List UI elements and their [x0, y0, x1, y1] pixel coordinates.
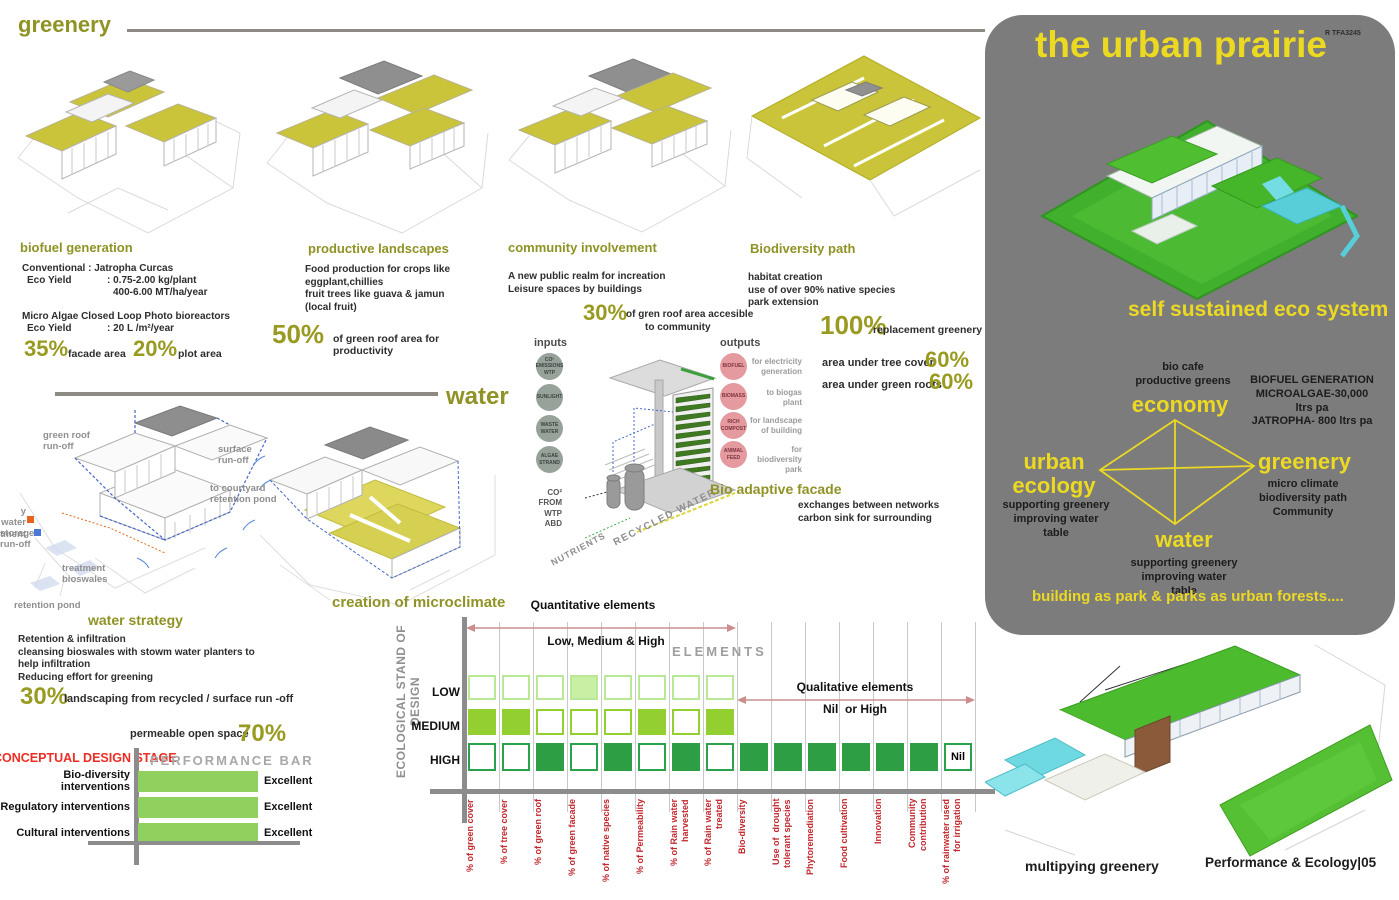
performance-category: Cultural interventions: [0, 827, 130, 839]
input-sunlight: SUNLIGHT: [536, 384, 563, 411]
eco-system-subtitle: self sustained eco system: [1128, 298, 1388, 322]
inputs-title: inputs: [534, 337, 567, 349]
eco-row-label: LOW: [405, 675, 460, 709]
performance-row: Bio-diversity interventionsExcellent: [0, 768, 312, 794]
panel-tagline: building as park & parks as urban forest…: [1032, 588, 1344, 605]
water-stat2-label: permeable open space: [130, 728, 249, 740]
eco-cell-low: [502, 675, 530, 700]
urban-ecology-note: supporting greenery improving water tabl…: [1000, 499, 1112, 540]
input-waste-water: WASTE WATER: [536, 415, 563, 442]
eco-row-labels: LOWMEDIUMHIGH: [405, 675, 460, 777]
eco-cell-high: [638, 743, 666, 771]
performance-bar: [138, 771, 258, 792]
output-animal-feed-desc: for biodiversity park: [750, 445, 802, 475]
eco-cell-low: [536, 675, 564, 700]
biofuel-stat1-value: 35%: [24, 338, 68, 360]
eco-column-label: % of Rain water harvested: [669, 799, 703, 896]
eco-cell-medium: [604, 709, 632, 735]
water-section-title: water: [446, 383, 509, 411]
eco-cell-medium: [672, 709, 700, 735]
eco-cell-medium: [706, 709, 734, 735]
eco-cell-high: [468, 743, 496, 771]
biofuel-micro-algae: Micro Algae Closed Loop Photo bioreactor…: [22, 311, 230, 324]
performance-rating: Excellent: [264, 775, 312, 787]
eco-cell-high: [604, 743, 632, 771]
eco-cell-high: [740, 743, 768, 771]
performance-bar-title: PERFORMANCE BAR: [150, 753, 314, 768]
low-medium-high-label: Low, Medium & High: [516, 634, 696, 648]
biodiversity-stat3-label: area under green roofs: [822, 379, 942, 391]
footer-sheet-title: Performance & Ecology|05: [1205, 855, 1376, 870]
label-green-roof-runoff: green roof run-off: [43, 430, 90, 453]
biofuel-conventional: Conventional : Jatropha Curcas: [22, 263, 173, 276]
label-retention-pond: retention pond: [14, 600, 81, 611]
eco-row-label: HIGH: [405, 743, 460, 777]
eco-column-label: Food cultivation: [839, 799, 873, 896]
eco-cell-high: Nil: [944, 743, 972, 771]
eco-cell-low: [706, 675, 734, 700]
eco-cell-medium: [502, 709, 530, 735]
bio-adaptive-facade-subtitle: exchanges between networks carbon sink f…: [798, 500, 939, 525]
eco-cell-medium: [638, 709, 666, 735]
label-runoff: run-off: [0, 539, 31, 550]
render-urban-prairie-building: [1012, 66, 1372, 301]
output-biomass-desc: to biogas plant: [750, 388, 802, 408]
bio-adaptive-facade-title: Bio adaptive facade: [710, 481, 842, 497]
biodiversity-stat2-value: 60%: [925, 349, 969, 371]
render-multiplying-greenery: [985, 630, 1395, 858]
microclimate-caption: creation of microclimate: [332, 594, 505, 611]
greenery-section-title: greenery: [18, 12, 111, 38]
eco-column-label: Community contribution: [907, 799, 941, 896]
eco-row-medium: [465, 709, 737, 735]
eco-column-label: % of Permeability: [635, 799, 669, 896]
diamond-diagram: [1090, 412, 1270, 532]
nutrients-label: NUTRIENTS: [549, 530, 607, 567]
performance-rating: Excellent: [264, 827, 312, 839]
urban-prairie-title: the urban prairie: [1035, 24, 1327, 66]
eco-cell-low: [604, 675, 632, 700]
inputs-column: CO² EMISSIONS WTP SUNLIGHT WASTE WATER A…: [536, 353, 563, 477]
biofuel-title: biofuel generation: [20, 240, 133, 255]
eco-cell-high: [774, 743, 802, 771]
eco-column-label: Innovation: [873, 799, 907, 896]
biofuel-eco-yield-label-2: Eco Yield: [27, 323, 107, 334]
eco-column-label: % of green roof: [533, 799, 567, 896]
label-surface-runoff: surface run-off: [218, 444, 252, 467]
water-divider: [55, 392, 438, 396]
eco-cell-high: [706, 743, 734, 771]
node-greenery: greenery: [1258, 449, 1351, 475]
eco-cell-high: [842, 743, 870, 771]
biodiversity-stat2-label: area under tree cover: [822, 357, 934, 369]
biofuel-eco-yield-label-1: Eco Yield: [27, 275, 107, 286]
water-strategy-body: Retention & infiltration cleansing biosw…: [18, 634, 255, 684]
biodiversity-body: habitat creation use of over 90% native …: [748, 272, 895, 310]
community-stat-label-1: of gren roof area accesible: [626, 309, 753, 320]
footer-caption: multipying greenery: [1025, 858, 1159, 874]
eco-cell-low: [672, 675, 700, 700]
output-rich-compost-desc: for landscape of building: [750, 416, 802, 436]
eco-cell-high: [910, 743, 938, 771]
render-productive-building: [252, 38, 492, 238]
water-stat2-value: 70%: [238, 722, 286, 746]
label-storage: storage: [0, 528, 34, 539]
eco-cell-low: [638, 675, 666, 700]
productive-title: productive landscapes: [308, 241, 449, 256]
eco-column-label: % of rainwater used for irrigation: [941, 799, 975, 896]
performance-category: Regulatory interventions: [0, 801, 130, 813]
node-water: water: [1152, 527, 1216, 553]
greenery-divider: [127, 29, 985, 32]
productive-body: Food production for crops like eggplant,…: [305, 264, 450, 314]
eco-row-high: Nil: [465, 743, 975, 771]
eco-cell-low: [468, 675, 496, 700]
biofuel-stat2-value: 20%: [133, 338, 177, 360]
label-treatment-bioswales: treatment bioswales: [62, 563, 107, 586]
eco-cell-high: [672, 743, 700, 771]
output-biofuel-desc: for electricity generation: [750, 357, 802, 377]
eco-column-label: Bio-diversity: [737, 799, 771, 896]
eco-cell-low: [570, 675, 598, 700]
performance-chart-x-axis: [88, 841, 300, 845]
qualitative-elements-label: Qualitative elements: [765, 680, 945, 694]
eco-cell-high: [876, 743, 904, 771]
community-title: community involvement: [508, 240, 657, 255]
eco-column-label: Use of drought tolerant species: [771, 799, 805, 896]
performance-bar: [138, 797, 258, 818]
performance-rows: Bio-diversity interventionsExcellentRegu…: [0, 768, 312, 846]
input-algae-strand: ALGAE STRAND: [536, 446, 563, 473]
eco-cell-high: [536, 743, 564, 771]
eco-column-label: % of native species: [601, 799, 635, 896]
eco-column-label: % of green cover: [465, 799, 499, 896]
productive-stat-value: 50%: [272, 321, 324, 347]
sheet-code: R TFA3245: [1325, 30, 1361, 37]
eco-row-label: MEDIUM: [405, 709, 460, 743]
elements-label: ELEMENTS: [672, 644, 767, 659]
eco-chart-x-axis: [430, 789, 995, 794]
greenery-note: micro climate biodiversity path Communit…: [1252, 478, 1354, 519]
storage-marker: [34, 529, 41, 536]
eco-column-label: Phytoremediation: [805, 799, 839, 896]
grey-water-marker: [27, 516, 34, 523]
eco-cell-medium: [536, 709, 564, 735]
quantitative-arrow: [466, 622, 736, 634]
eco-cell-high: [808, 743, 836, 771]
eco-column-label: % of tree cover: [499, 799, 533, 896]
node-urban-ecology: urban ecology: [1008, 450, 1100, 498]
performance-category: Bio-diversity interventions: [0, 769, 130, 793]
biofuel-eco-yield-value-2: : 20 L /m²/year: [107, 323, 174, 334]
render-biofuel-building: [8, 38, 246, 238]
biodiversity-stat3-value: 60%: [929, 371, 973, 393]
eco-row-low: [465, 675, 737, 700]
biodiversity-stat1-label: replacement greenery: [873, 324, 982, 336]
community-stat-value: 30%: [583, 302, 627, 324]
biofuel-stat2-label: plot area: [178, 348, 222, 360]
economy-note: bio cafe productive greens: [1128, 361, 1238, 389]
performance-row: Regulatory interventionsExcellent: [0, 794, 312, 820]
productive-stat-label: of green roof area for productivity: [333, 333, 439, 357]
co2-source-label: CO² FROM WTP ABD: [524, 488, 562, 530]
render-biodiversity-map: [742, 38, 985, 243]
biofuel-stat1-label: facade area: [68, 348, 126, 360]
nil-or-high-label: Nil or High: [765, 702, 945, 716]
render-microclimate-building: [250, 415, 505, 610]
eco-cell-medium: [468, 709, 496, 735]
community-stat-label-2: to community: [645, 322, 711, 333]
quantitative-elements-label: Quantitative elements: [503, 598, 683, 612]
eco-cell-high: [502, 743, 530, 771]
performance-rating: Excellent: [264, 801, 312, 813]
label-courtyard-retention: to courtyard retention pond: [210, 483, 277, 506]
input-co2-emissions: CO² EMISSIONS WTP: [536, 353, 563, 380]
water-strategy-title: water strategy: [88, 612, 183, 628]
eco-cell-medium: [570, 709, 598, 735]
eco-cell-high: [570, 743, 598, 771]
eco-column-label: % of green facade: [567, 799, 601, 896]
eco-column-labels: % of green cover% of tree cover% of gree…: [465, 799, 975, 896]
water-stat1-label: landscaping from recycled / surface run …: [64, 693, 293, 705]
community-body: A new public realm for increation Leisur…: [508, 271, 665, 296]
biofuel-eco-yield-value-1b: 400-6.00 MT/ha/year: [113, 287, 208, 300]
presentation-sheet: greenery biofuel generation Conventional…: [0, 0, 1399, 900]
render-community-building: [497, 38, 737, 238]
biodiversity-title: Biodiversity path: [750, 241, 855, 256]
outputs-title: outputs: [720, 337, 760, 349]
water-stat1-value: 30%: [20, 685, 68, 709]
eco-column-label: % of Rain water treated: [703, 799, 737, 896]
biofuel-eco-yield-value-1: : 0.75-2.00 kg/plant: [107, 275, 196, 286]
